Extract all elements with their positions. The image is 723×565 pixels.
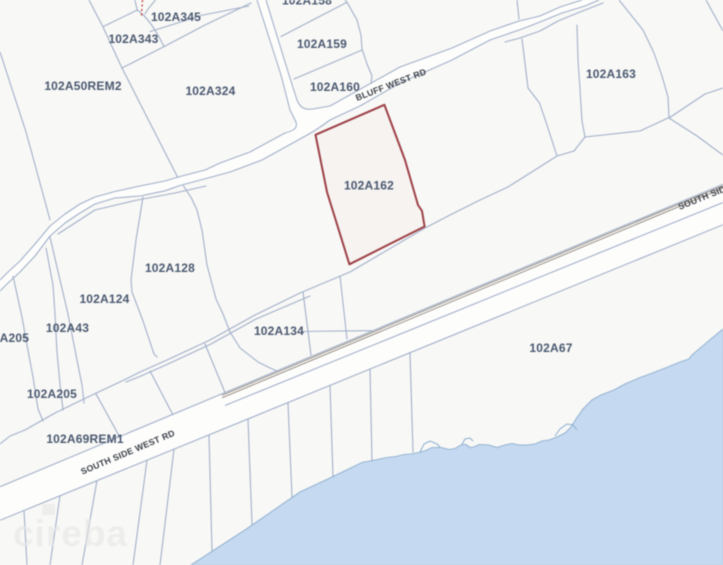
svg-text:102A205: 102A205 [27, 387, 77, 401]
svg-text:102A345: 102A345 [151, 10, 201, 24]
svg-text:cireba: cireba [13, 513, 128, 554]
svg-text:102A160: 102A160 [310, 80, 360, 94]
svg-text:102A343: 102A343 [108, 32, 158, 46]
svg-text:102A158: 102A158 [282, 0, 332, 8]
svg-text:102A162: 102A162 [344, 179, 394, 193]
svg-text:102A69REM1: 102A69REM1 [46, 432, 124, 446]
svg-text:102A324: 102A324 [185, 84, 235, 98]
svg-text:102A134: 102A134 [254, 324, 304, 338]
svg-text:102A128: 102A128 [145, 261, 195, 275]
svg-text:102A67: 102A67 [529, 341, 572, 355]
svg-text:102A43: 102A43 [46, 321, 89, 335]
svg-text:102A124: 102A124 [79, 292, 129, 306]
svg-text:102A163: 102A163 [586, 67, 636, 81]
svg-text:102A159: 102A159 [297, 37, 347, 51]
svg-text:102A50REM2: 102A50REM2 [44, 79, 122, 93]
svg-text:102A205: 102A205 [0, 331, 29, 345]
